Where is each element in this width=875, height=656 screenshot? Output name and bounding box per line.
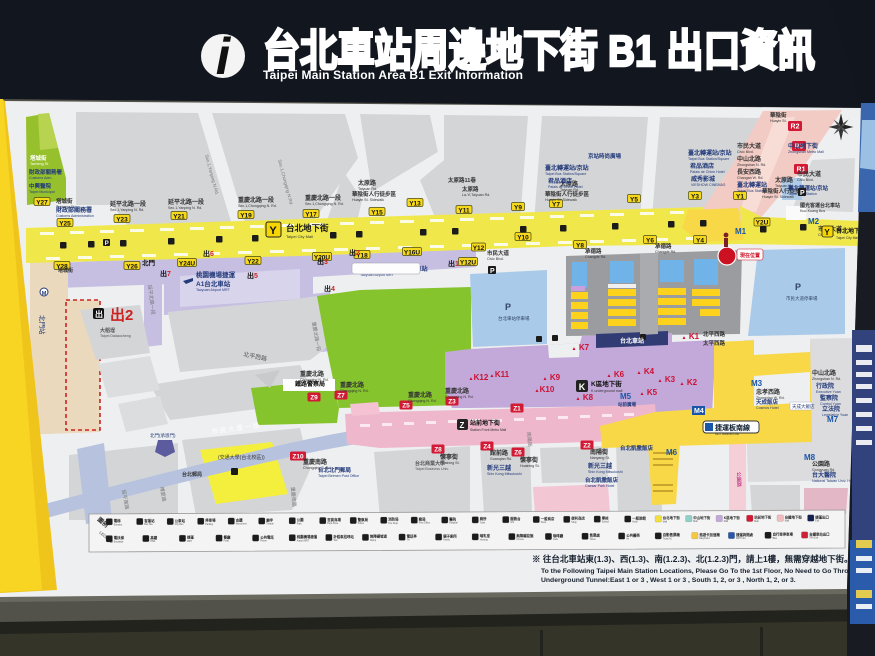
svg-text:Y19: Y19 (240, 213, 252, 220)
svg-text:Y4: Y4 (696, 238, 704, 245)
svg-text:Ticket M.: Ticket M. (663, 537, 673, 540)
svg-text:華陰街人行徒步區: 華陰街人行徒步區 (545, 190, 590, 198)
svg-text:財政部關務署: 財政部關務署 (28, 168, 63, 176)
svg-text:公共電話: 公共電話 (260, 534, 274, 539)
svg-text:M4: M4 (694, 408, 704, 415)
svg-text:M5: M5 (620, 392, 632, 401)
svg-text:重慶北路: 重慶北路 (300, 370, 325, 378)
svg-text:Escalator: Escalator (114, 540, 124, 543)
svg-text:Customs Administration: Customs Administration (56, 214, 94, 218)
svg-text:華陰街人行徒步區: 華陰街人行徒步區 (352, 190, 397, 198)
svg-text:台鐵地下街: 台鐵地下街 (785, 515, 803, 520)
svg-text:K區地下街: K區地下街 (591, 379, 622, 388)
svg-text:Z1: Z1 (513, 406, 521, 413)
svg-text:Y27: Y27 (36, 200, 48, 207)
svg-text:Taipei Bus Station: Taipei Bus Station (737, 189, 766, 193)
svg-text:華陰街: 華陰街 (770, 111, 787, 119)
svg-text:Z7: Z7 (337, 393, 345, 400)
svg-text:Mall: Mall (693, 521, 698, 523)
svg-text:Store: Store (541, 521, 547, 524)
svg-text:天成大飯店: 天成大飯店 (792, 403, 815, 410)
svg-text:塔城街: 塔城街 (30, 154, 47, 162)
svg-text:Y22: Y22 (247, 259, 259, 266)
svg-text:中山北路: 中山北路 (812, 369, 837, 377)
svg-text:Y2U: Y2U (756, 220, 769, 227)
svg-text:無障礙坡道: 無障礙坡道 (370, 534, 388, 539)
svg-text:Taipei Municipal: Taipei Municipal (29, 190, 55, 194)
svg-text:Shin Kong Mitsukoshi: Shin Kong Mitsukoshi (588, 470, 623, 474)
svg-text:Sec.1,Chongqing N. Rd.: Sec.1,Chongqing N. Rd. (238, 204, 277, 208)
svg-text:Y25: Y25 (59, 221, 71, 228)
svg-text:M: M (42, 291, 47, 297)
svg-text:延平北路一段: 延平北路一段 (167, 198, 204, 206)
svg-text:台北車站: 台北車站 (620, 337, 644, 345)
svg-text:Taoyuan Airport MRT: Taoyuan Airport MRT (196, 288, 230, 292)
svg-text:市民大道: 市民大道 (797, 170, 821, 178)
svg-text:公園路: 公園路 (735, 472, 743, 487)
svg-text:台北郵局: 台北郵局 (182, 471, 202, 478)
svg-text:Chongqing N. Rd.: Chongqing N. Rd. (445, 395, 474, 399)
svg-text:School: School (602, 522, 610, 524)
svg-text:站前地下街: 站前地下街 (754, 515, 772, 520)
svg-text:City Bus: City Bus (175, 523, 184, 526)
svg-text:捷運板南線: 捷運板南線 (715, 423, 750, 432)
svg-text:Taipei City Mall: Taipei City Mall (286, 234, 313, 239)
svg-text:君品酒店: 君品酒店 (690, 162, 714, 170)
svg-text:Y26: Y26 (126, 264, 138, 271)
svg-text:自動售票機: 自動售票機 (663, 532, 681, 537)
svg-text:MRT: MRT (187, 541, 193, 543)
svg-text:K7: K7 (579, 343, 590, 352)
svg-text:館前路: 館前路 (489, 449, 509, 457)
svg-text:Airport MRT: Airport MRT (297, 539, 310, 542)
svg-text:P: P (505, 302, 511, 312)
svg-text:Temple: Temple (266, 524, 274, 526)
svg-text:台北地下街: 台北地下街 (286, 223, 329, 233)
svg-text:Park: Park (297, 522, 303, 525)
svg-text:北門: 北門 (142, 258, 156, 267)
svg-text:電梯: 電梯 (114, 518, 121, 523)
svg-text:Y12U: Y12U (460, 260, 477, 267)
svg-text:Changde Rd.: Changde Rd. (585, 255, 606, 259)
svg-text:Y1: Y1 (736, 194, 744, 201)
svg-text:Y15: Y15 (371, 210, 383, 217)
svg-text:北門站: 北門站 (38, 315, 47, 335)
svg-text:K區地下街: K區地下街 (724, 515, 741, 520)
svg-text:▲: ▲ (572, 346, 577, 352)
svg-text:親子廁所: 親子廁所 (443, 533, 457, 538)
svg-text:京站時尚廣場: 京站時尚廣場 (588, 152, 622, 160)
svg-text:Y16U: Y16U (404, 250, 421, 257)
svg-text:Customs Adm.: Customs Adm. (29, 176, 52, 180)
svg-text:出3: 出3 (317, 257, 328, 266)
svg-text:Sec.1,Yanping N. Rd.: Sec.1,Yanping N. Rd. (110, 208, 144, 212)
svg-text:Mall: Mall (724, 521, 729, 523)
svg-text:監察院: 監察院 (820, 394, 838, 402)
svg-text:北平西路: 北平西路 (703, 330, 726, 338)
svg-text:承德路: 承德路 (585, 247, 602, 255)
svg-text:Ticket: Ticket (590, 538, 596, 541)
svg-text:消防局: 消防局 (388, 517, 399, 522)
svg-text:▲: ▲ (680, 381, 685, 387)
svg-text:K5: K5 (647, 388, 658, 397)
svg-text:一般商店: 一般商店 (541, 516, 555, 521)
svg-text:MRT Info: MRT Info (736, 538, 746, 540)
svg-text:Elevator: Elevator (114, 523, 123, 526)
svg-text:公車站: 公車站 (175, 518, 186, 523)
svg-text:出6: 出6 (203, 249, 214, 258)
svg-text:▲: ▲ (607, 373, 612, 379)
svg-text:鐵路警察局: 鐵路警察局 (295, 380, 325, 388)
svg-text:中山北路: 中山北路 (737, 155, 762, 163)
svg-text:Civic Blvd.: Civic Blvd. (797, 178, 814, 182)
svg-text:醫院: 醫院 (449, 516, 456, 521)
svg-text:Underground Tunnel:East 1 or 3: Underground Tunnel:East 1 or 3 , West 1 … (541, 577, 796, 584)
svg-text:K3: K3 (665, 375, 676, 384)
svg-text:La-Yi,Taiyuan Rd.: La-Yi,Taiyuan Rd. (462, 193, 490, 197)
svg-text:古蹟: 古蹟 (236, 518, 243, 523)
svg-text:君品酒店: 君品酒店 (548, 177, 572, 185)
svg-text:Y7: Y7 (552, 202, 560, 209)
svg-text:出4: 出4 (324, 284, 335, 293)
svg-text:重慶南路: 重慶南路 (303, 458, 328, 466)
svg-text:出5: 出5 (247, 271, 258, 280)
svg-text:哺乳室: 哺乳室 (480, 533, 491, 538)
svg-text:Z3: Z3 (448, 399, 456, 406)
svg-text:P: P (490, 268, 495, 275)
svg-text:K1: K1 (689, 332, 700, 341)
svg-text:Fire Dept.: Fire Dept. (388, 522, 398, 525)
svg-text:Guanqian Rd.: Guanqian Rd. (490, 457, 512, 461)
svg-text:桃園機場捷運: 桃園機場捷運 (297, 534, 318, 539)
svg-text:電扶梯: 電扶梯 (114, 535, 125, 540)
svg-text:捷運: 捷運 (187, 535, 194, 540)
svg-text:中興醫院: 中興醫院 (29, 182, 52, 190)
svg-text:太原路: 太原路 (357, 179, 377, 187)
svg-text:電話亭: 電話亭 (407, 534, 418, 539)
svg-text:台北車站停車場: 台北車站停車場 (498, 315, 530, 322)
svg-text:K underground mall: K underground mall (591, 389, 623, 393)
svg-text:自行車停車場: 自行車停車場 (773, 532, 794, 537)
svg-text:Taipei Bus Station/Square: Taipei Bus Station/Square (688, 157, 729, 161)
svg-text:Y3: Y3 (691, 194, 699, 201)
svg-text:▲: ▲ (543, 376, 548, 382)
svg-text:太原路: 太原路 (462, 185, 479, 193)
svg-text:便利商店: 便利商店 (571, 516, 585, 521)
svg-text:Taipei Dadaocheng: Taipei Dadaocheng (100, 334, 131, 338)
svg-text:▲: ▲ (469, 376, 474, 382)
svg-text:K4: K4 (644, 367, 655, 376)
svg-text:承德路: 承德路 (655, 242, 672, 250)
svg-text:立法院: 立法院 (822, 405, 840, 413)
svg-text:Bike: Bike (773, 538, 778, 540)
svg-text:M6: M6 (666, 448, 678, 457)
svg-text:塔城街: 塔城街 (58, 267, 73, 274)
svg-text:Cosmos Hotel: Cosmos Hotel (756, 406, 779, 410)
svg-text:Y23: Y23 (116, 217, 128, 224)
svg-text:Family: Family (443, 540, 451, 542)
svg-text:Civic Blvd.: Civic Blvd. (737, 150, 754, 154)
svg-text:現在位置: 現在位置 (740, 252, 760, 259)
svg-text:Taipei Main Station Area B1 Ex: Taipei Main Station Area B1 Exit Informa… (263, 68, 523, 82)
svg-text:郵局: 郵局 (419, 517, 426, 522)
svg-text:M2: M2 (808, 217, 820, 226)
svg-text:A1台北車站: A1台北車站 (196, 279, 231, 288)
svg-text:太原路: 太原路 (774, 176, 794, 184)
svg-text:Ramp: Ramp (370, 540, 377, 542)
svg-text:i: i (216, 28, 232, 86)
svg-text:Zhongshan Metro Mall: Zhongshan Metro Mall (788, 150, 824, 154)
svg-text:Palais de Chine Hotel: Palais de Chine Hotel (690, 170, 725, 174)
svg-text:Huayin St. Sidewalk: Huayin St. Sidewalk (545, 198, 577, 202)
svg-text:Nanyang St.: Nanyang St. (590, 456, 610, 460)
svg-text:Phone: Phone (260, 541, 267, 543)
svg-text:Nursing: Nursing (480, 538, 489, 541)
svg-text:計程車招呼站: 計程車招呼站 (333, 534, 354, 539)
svg-text:M7: M7 (827, 415, 839, 424)
svg-text:Z: Z (460, 421, 465, 430)
svg-text:南陽街: 南陽街 (525, 432, 533, 448)
svg-text:VIESHOW CINEMAS: VIESHOW CINEMAS (691, 183, 726, 187)
svg-text:Food: Food (224, 541, 230, 543)
svg-text:重慶北路一段: 重慶北路一段 (238, 196, 274, 204)
svg-text:Chongqing N. Rd.: Chongqing N. Rd. (340, 389, 369, 393)
svg-text:售票處: 售票處 (589, 533, 601, 538)
svg-text:長安西路: 長安西路 (737, 168, 762, 176)
svg-text:Exit: Exit (815, 520, 819, 523)
svg-text:K8: K8 (583, 393, 594, 402)
svg-text:Z6: Z6 (514, 450, 522, 457)
svg-text:Hotel: Hotel (632, 521, 638, 524)
svg-text:TRA Exit: TRA Exit (809, 537, 818, 540)
svg-text:Taipei Business Univ.: Taipei Business Univ. (415, 467, 449, 471)
svg-text:Taipei Bus Station/Square: Taipei Bus Station/Square (545, 172, 586, 176)
svg-text:Post Office: Post Office (419, 522, 431, 525)
svg-text:學校: 學校 (602, 516, 609, 521)
svg-text:Zhongxiao W. Rd.: Zhongxiao W. Rd. (756, 396, 785, 400)
svg-text:P: P (795, 282, 801, 292)
svg-text:廁所: 廁所 (479, 516, 487, 521)
svg-text:重慶北路一段: 重慶北路一段 (305, 194, 341, 202)
svg-text:M1: M1 (735, 227, 747, 236)
svg-text:出1: 出1 (448, 259, 459, 268)
svg-text:Hospital: Hospital (449, 522, 458, 525)
svg-text:中山地下街: 中山地下街 (693, 515, 711, 520)
svg-text:Y: Y (269, 225, 277, 237)
svg-text:K6: K6 (614, 370, 625, 379)
svg-text:EasyCard: EasyCard (699, 537, 710, 540)
svg-text:Tacheng St.: Tacheng St. (30, 162, 49, 166)
svg-text:臺北轉運站/京站: 臺北轉運站/京站 (688, 149, 732, 157)
svg-text:臺北轉運站/京站: 臺北轉運站/京站 (788, 184, 829, 192)
svg-text:出: 出 (95, 309, 103, 319)
svg-text:Y21: Y21 (173, 214, 185, 221)
svg-text:Y8: Y8 (576, 243, 584, 250)
svg-text:(交通大學(台北校區)): (交通大學(台北校區)) (218, 454, 265, 461)
svg-text:臺北轉運站/京站: 臺北轉運站/京站 (545, 164, 589, 172)
svg-text:▲: ▲ (535, 388, 540, 394)
svg-text:To the Following Taipei Main S: To the Following Taipei Main Station Loc… (541, 568, 861, 575)
svg-text:Changde Rd.: Changde Rd. (655, 250, 676, 254)
svg-text:百貨商場: 百貨商場 (327, 517, 341, 522)
svg-text:Police: Police (358, 523, 365, 525)
svg-text:K11: K11 (495, 370, 510, 379)
svg-text:北門(承恩門): 北門(承恩門) (150, 432, 176, 439)
svg-text:Y12: Y12 (473, 245, 485, 252)
svg-text:Taipei Beimen Post Office: Taipei Beimen Post Office (318, 474, 359, 478)
svg-text:Z4: Z4 (483, 444, 491, 451)
svg-text:台北北門郵局: 台北北門郵局 (318, 466, 352, 474)
svg-text:Dept.Store: Dept.Store (327, 522, 339, 525)
svg-text:Z9: Z9 (310, 395, 318, 402)
svg-text:市民大道停車場: 市民大道停車場 (786, 295, 818, 302)
svg-text:大稻埕: 大稻埕 (100, 327, 115, 334)
svg-text:出2: 出2 (349, 248, 360, 257)
svg-text:Y10: Y10 (517, 235, 529, 242)
svg-text:MRT Bannan Line: MRT Bannan Line (715, 432, 739, 436)
svg-text:Z5: Z5 (402, 403, 410, 410)
svg-text:Shin Kong Mitsukoshi: Shin Kong Mitsukoshi (487, 472, 522, 476)
svg-text:K9: K9 (550, 373, 561, 382)
svg-text:站前廣場: 站前廣場 (618, 401, 636, 408)
svg-text:Y6: Y6 (646, 238, 654, 245)
svg-text:Y24U: Y24U (179, 261, 196, 268)
svg-text:Huaining St.: Huaining St. (520, 464, 540, 468)
svg-text:Y9: Y9 (514, 205, 522, 212)
svg-text:懷寧街: 懷寧街 (439, 453, 458, 461)
svg-text:M3: M3 (751, 379, 763, 388)
svg-text:出2: 出2 (110, 306, 133, 324)
svg-text:▲: ▲ (640, 391, 645, 397)
svg-text:新光三越: 新光三越 (487, 464, 512, 472)
svg-text:台北凱撒飯店: 台北凱撒飯店 (620, 444, 654, 452)
svg-text:Z2: Z2 (583, 443, 591, 450)
svg-text:Parking: Parking (205, 523, 214, 526)
svg-text:桃園機場捷運: 桃園機場捷運 (196, 270, 236, 279)
svg-text:忠孝西路: 忠孝西路 (756, 388, 781, 396)
svg-text:公園: 公園 (297, 517, 304, 522)
svg-text:服務台: 服務台 (510, 516, 521, 521)
svg-text:中山地下街: 中山地下街 (788, 142, 818, 150)
svg-text:Changan W. Rd.: Changan W. Rd. (737, 176, 763, 180)
svg-text:R2: R2 (791, 124, 800, 131)
svg-text:※ 往台北車站東(1.3)、西(1.3)、南(1.2.3)、: ※ 往台北車站東(1.3)、西(1.3)、南(1.2.3)、北(1.2.3)門，… (532, 554, 853, 564)
svg-text:市民大道: 市民大道 (737, 142, 761, 150)
svg-text:Huayin St. Sidewalk: Huayin St. Sidewalk (352, 198, 384, 202)
svg-text:Sec.1,Yanping N. Rd.: Sec.1,Yanping N. Rd. (168, 206, 202, 210)
svg-text:停車場: 停車場 (205, 518, 216, 523)
svg-text:P: P (800, 190, 805, 197)
svg-text:Executive Yuan: Executive Yuan (816, 390, 841, 394)
svg-text:Art: Art (626, 538, 629, 541)
svg-text:財政部關務署: 財政部關務署 (55, 206, 92, 214)
svg-text:出7: 出7 (160, 269, 171, 278)
svg-text:重慶北路: 重慶北路 (445, 387, 470, 395)
svg-text:太平西路: 太平西路 (703, 339, 726, 347)
svg-text:臺北轉運站: 臺北轉運站 (737, 181, 767, 189)
svg-text:Zhongshan N. Rd.: Zhongshan N. Rd. (737, 163, 766, 167)
svg-text:Y13: Y13 (409, 201, 421, 208)
svg-text:站前地下街: 站前地下街 (470, 419, 500, 427)
svg-text:Caesar Park Hotel: Caesar Park Hotel (585, 484, 615, 488)
svg-text:悠遊卡加值機: 悠遊卡加值機 (698, 532, 720, 537)
svg-text:Sec.1,Chongqing N. Rd.: Sec.1,Chongqing N. Rd. (305, 202, 344, 206)
svg-text:Taiyuan Rd.: Taiyuan Rd. (358, 187, 377, 191)
svg-text:Civic Blvd.: Civic Blvd. (487, 257, 504, 261)
svg-text:▲: ▲ (576, 396, 581, 402)
svg-text:▲: ▲ (658, 378, 663, 384)
svg-text:Palais de Chine Hotel: Palais de Chine Hotel (548, 185, 583, 189)
svg-text:廟宇: 廟宇 (266, 517, 273, 522)
svg-text:無障礙設施: 無障礙設施 (516, 533, 534, 538)
svg-text:公共藝術: 公共藝術 (626, 532, 640, 537)
svg-text:Monument: Monument (236, 523, 247, 526)
svg-text:警察局: 警察局 (357, 517, 369, 522)
svg-text:重慶北路: 重慶北路 (408, 391, 433, 399)
svg-text:台大醫院: 台大醫院 (812, 471, 836, 479)
svg-text:M8: M8 (804, 453, 816, 462)
svg-text:台鐵車站出口: 台鐵車站出口 (809, 531, 830, 536)
svg-text:Taipei City Mall: Taipei City Mall (836, 236, 859, 240)
svg-text:台北地下街: 台北地下街 (663, 515, 681, 520)
svg-text:Taxi: Taxi (333, 540, 338, 542)
svg-text:一般旅館: 一般旅館 (632, 515, 646, 520)
svg-text:HSR: HSR (150, 541, 155, 543)
svg-text:Access.: Access. (516, 538, 524, 541)
svg-text:▲: ▲ (637, 370, 642, 376)
svg-text:咖啡廳: 咖啡廳 (553, 533, 564, 538)
svg-text:▲: ▲ (490, 373, 495, 379)
svg-text:Y17: Y17 (305, 212, 317, 219)
svg-text:懷寧街: 懷寧街 (519, 456, 538, 464)
svg-text:台北凱撒飯店: 台北凱撒飯店 (585, 476, 619, 484)
svg-text:Tel: Tel (407, 540, 410, 542)
svg-text:威秀影城: 威秀影城 (691, 175, 715, 183)
svg-text:太原路11巷: 太原路11巷 (448, 176, 476, 184)
svg-text:Y: Y (824, 228, 830, 237)
svg-text:Huayin St.: Huayin St. (770, 119, 787, 123)
svg-text:Toilet: Toilet (480, 521, 486, 524)
svg-text:K12: K12 (474, 373, 489, 382)
svg-text:K: K (579, 382, 586, 392)
svg-text:Mall: Mall (785, 521, 790, 523)
svg-text:南陽街: 南陽街 (590, 448, 608, 456)
svg-text:餐廳: 餐廳 (223, 535, 231, 540)
svg-text:Shop: Shop (571, 522, 577, 524)
svg-text:捷運詢問處: 捷運詢問處 (736, 532, 754, 537)
svg-text:市民大道: 市民大道 (487, 249, 510, 257)
svg-text:Y5: Y5 (630, 197, 638, 204)
svg-text:Kuo-Kuang Bus: Kuo-Kuang Bus (800, 209, 825, 213)
svg-text:行政院: 行政院 (815, 382, 834, 390)
svg-text:高鐵: 高鐵 (150, 535, 157, 540)
svg-text:Mall: Mall (754, 521, 759, 523)
svg-text:Control Yuan: Control Yuan (820, 402, 841, 406)
svg-text:Y11: Y11 (458, 208, 470, 215)
svg-text:K10: K10 (540, 385, 555, 394)
svg-text:延平北路一段: 延平北路一段 (109, 200, 146, 208)
svg-text:客運站: 客運站 (143, 518, 155, 523)
svg-text:P: P (105, 241, 109, 247)
svg-text:重慶北路: 重慶北路 (340, 381, 365, 389)
svg-text:國光客運台北車站: 國光客運台北車站 (800, 202, 840, 209)
svg-text:Mall: Mall (663, 521, 668, 523)
svg-text:K2: K2 (687, 378, 698, 387)
svg-text:Station Front Metro Mall: Station Front Metro Mall (470, 428, 506, 432)
svg-text:新光三越: 新光三越 (588, 462, 613, 470)
svg-text:Gongyuan Rd.: Gongyuan Rd. (812, 468, 835, 472)
svg-text:Bus Sta.: Bus Sta. (144, 523, 153, 526)
